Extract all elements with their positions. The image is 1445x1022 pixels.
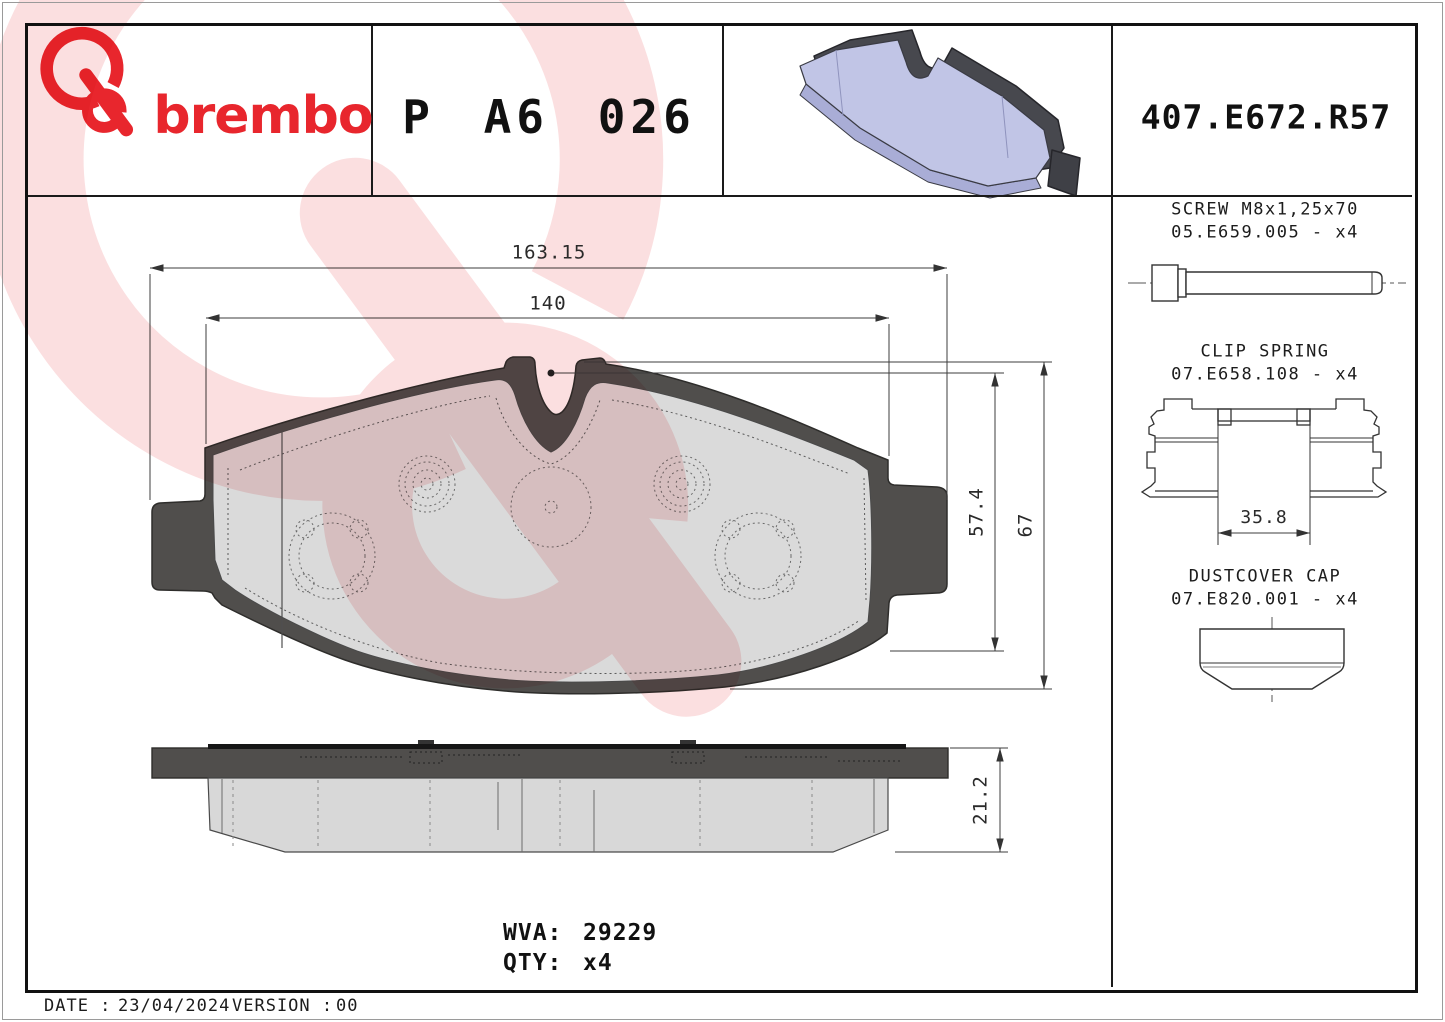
qty-label: QTY: xyxy=(503,952,562,975)
dim-clip-width: 35.8 xyxy=(1240,509,1287,527)
clip-spring-code: 07.E658.108 - x4 xyxy=(1171,367,1359,384)
brand-name: brembo xyxy=(153,90,372,142)
reference-number: 407.E672.R57 xyxy=(1141,101,1391,134)
dim-thickness: 21.2 xyxy=(972,775,991,825)
wva-label: WVA: xyxy=(503,922,562,945)
dim-total-height: 67 xyxy=(1017,513,1036,538)
datasheet-page: brembo P A6 026 407.E672.R57 SCREW M8x1,… xyxy=(0,0,1445,1022)
dim-plate-width: 140 xyxy=(529,295,566,314)
qty-value: x4 xyxy=(583,952,613,975)
screw-code: 05.E659.005 - x4 xyxy=(1171,225,1359,242)
date-label: DATE : xyxy=(44,998,111,1015)
wva-value: 29229 xyxy=(583,922,657,945)
dim-pad-height: 57.4 xyxy=(968,487,987,537)
version-value: 00 xyxy=(336,998,358,1015)
version-label: VERSION : xyxy=(232,998,333,1015)
header-separator xyxy=(28,195,1412,197)
header-divider-2 xyxy=(722,26,724,195)
right-column-divider xyxy=(1111,26,1113,987)
clip-spring-name: CLIP SPRING xyxy=(1200,344,1329,361)
dim-overall-width: 163.15 xyxy=(512,244,587,263)
part-number: P A6 026 xyxy=(402,94,696,140)
dustcover-name: DUSTCOVER CAP xyxy=(1189,569,1342,586)
dustcover-code: 07.E820.001 - x4 xyxy=(1171,592,1359,609)
date-value: 23/04/2024 xyxy=(118,998,230,1015)
screw-name: SCREW M8x1,25x70 xyxy=(1171,202,1359,219)
